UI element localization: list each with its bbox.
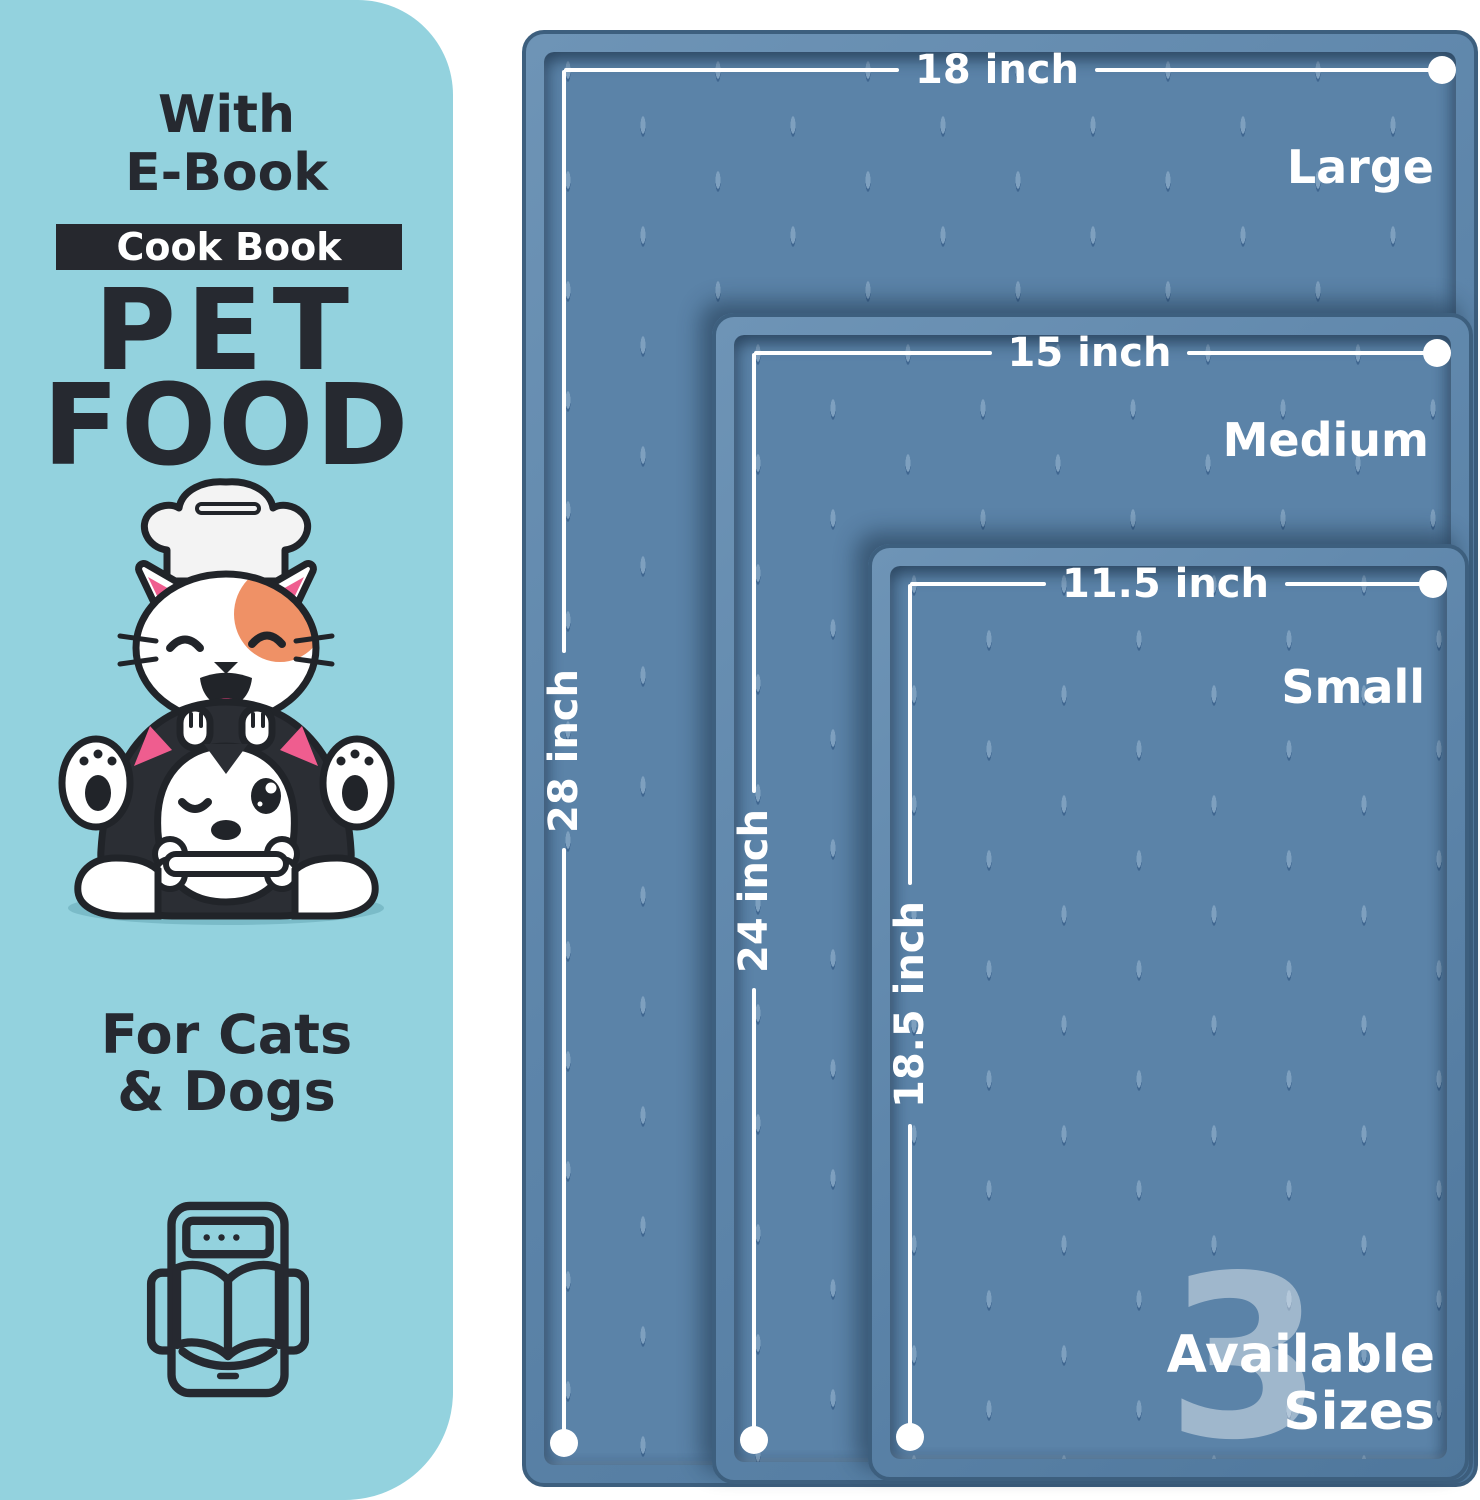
available-sizes-text: Available Sizes	[1167, 1327, 1435, 1447]
ruler-endpoint-dot	[550, 1429, 578, 1457]
mat-medium-width-label: 15 inch	[1008, 330, 1172, 376]
mat-small-width-ruler: 11.5 inch	[910, 562, 1447, 606]
ruler-endpoint-dot	[896, 1423, 924, 1451]
product-title: PET FOOD	[0, 284, 453, 474]
mat-medium-name: Medium	[1223, 413, 1429, 467]
mat-large-width-label: 18 inch	[915, 47, 1079, 93]
product-title-line2: FOOD	[0, 379, 453, 474]
ruler-line	[562, 70, 566, 653]
ebook-icon	[140, 1196, 316, 1404]
available-sizes-badge: 3 Available Sizes	[1167, 1327, 1435, 1447]
ruler-line	[754, 351, 992, 355]
ruler-line	[752, 988, 756, 1428]
ruler-line	[1095, 68, 1430, 72]
mat-medium-width-ruler: 15 inch	[754, 331, 1451, 375]
mat-medium-height-label: 24 inch	[731, 809, 777, 973]
product-image: With E-Book Cook Book PET FOOD	[0, 0, 1480, 1500]
ebook-heading-line2: E-Book	[0, 144, 453, 202]
ruler-endpoint-dot	[740, 1426, 768, 1454]
audience-text: For Cats & Dogs	[0, 1006, 453, 1120]
sizes-word: Sizes	[1167, 1384, 1435, 1441]
mat-large-name: Large	[1287, 140, 1434, 194]
mat-large-height-label: 28 inch	[541, 669, 587, 833]
mat-small-height-ruler: 18.5 inch	[888, 584, 932, 1451]
chef-hat-icon	[144, 482, 307, 581]
ruler-endpoint-dot	[1428, 56, 1456, 84]
ruler-line	[908, 584, 912, 885]
audience-line2: & Dogs	[0, 1063, 453, 1120]
ruler-line	[562, 848, 566, 1431]
ruler-endpoint-dot	[1419, 570, 1447, 598]
mat-large-height-ruler: 28 inch	[542, 70, 586, 1457]
ruler-endpoint-dot	[1423, 339, 1451, 367]
info-panel: With E-Book Cook Book PET FOOD	[0, 0, 453, 1500]
audience-line1: For Cats	[0, 1006, 453, 1063]
available-word: Available	[1167, 1327, 1435, 1384]
cat-dog-chef-illustration	[54, 478, 399, 930]
mat-small-height-label: 18.5 inch	[887, 901, 933, 1108]
ruler-line	[564, 68, 899, 72]
ebook-heading-line1: With	[0, 86, 453, 144]
mat-medium-height-ruler: 24 inch	[732, 353, 776, 1454]
ruler-line	[908, 1124, 912, 1425]
mat-small-width-label: 11.5 inch	[1062, 561, 1269, 607]
mat-small-name: Small	[1281, 660, 1425, 714]
cookbook-badge: Cook Book	[56, 224, 402, 270]
ruler-line	[1187, 351, 1425, 355]
ruler-line	[1285, 582, 1421, 586]
ebook-heading: With E-Book	[0, 86, 453, 202]
mat-small: 11.5 inch 18.5 inch Small 3 Available Si…	[868, 544, 1469, 1481]
mat-large-width-ruler: 18 inch	[564, 48, 1456, 92]
ruler-line	[752, 353, 756, 793]
mat-stack: 18 inch 28 inch Large 15 inch	[522, 30, 1478, 1487]
